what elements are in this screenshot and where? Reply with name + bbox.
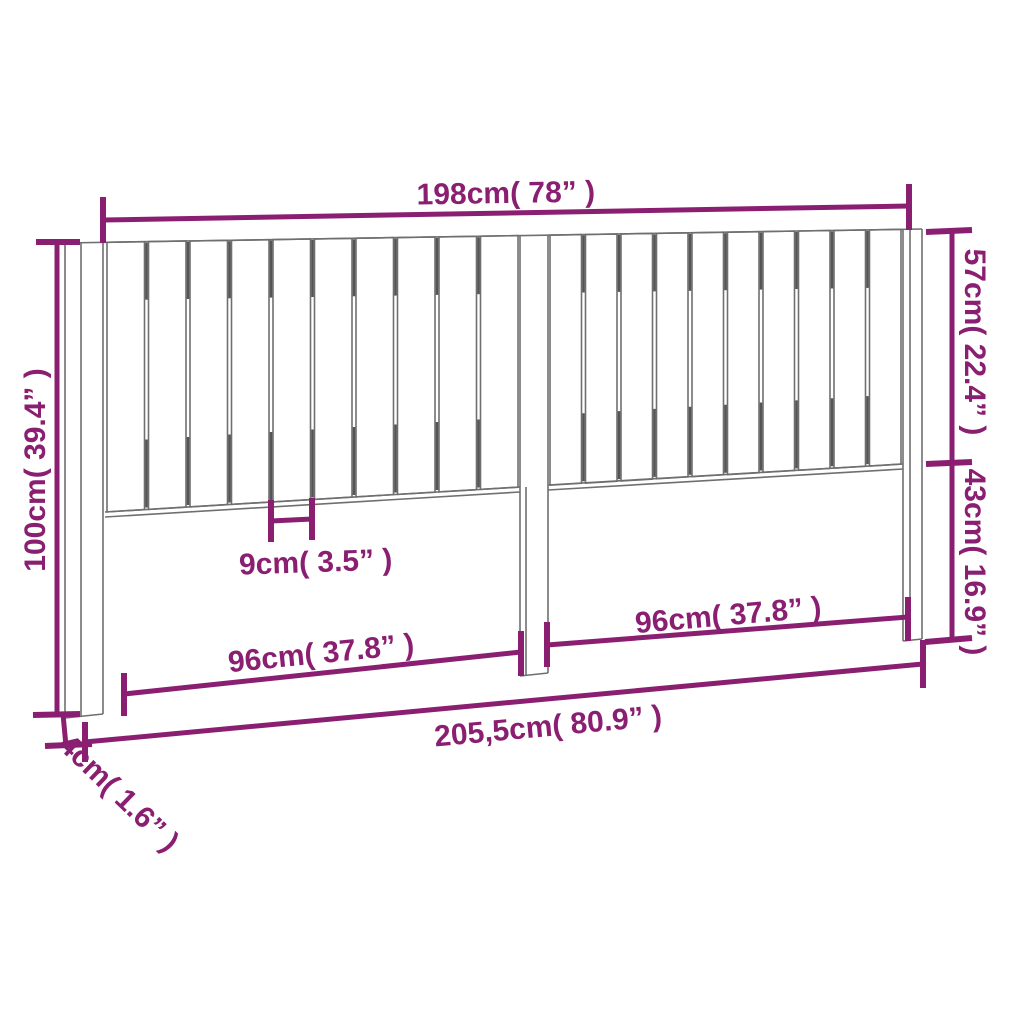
dim-label-total-height-left: 100cm( 39.4” ) xyxy=(19,368,52,571)
middle-leg xyxy=(520,235,548,676)
headboard-slat xyxy=(621,233,653,481)
dim-label-width-top: 198cm( 78” ) xyxy=(416,175,595,211)
headboard-slat xyxy=(190,240,228,507)
right-leg xyxy=(903,229,922,641)
diagram-canvas: 198cm( 78” ) 57cm( 22.4” ) 43cm( 16.9” )… xyxy=(0,0,1024,1024)
headboard-dimension-diagram: 198cm( 78” ) 57cm( 22.4” ) 43cm( 16.9” )… xyxy=(0,0,1024,1024)
headboard-slat xyxy=(273,239,311,502)
headboard-slat xyxy=(356,238,394,497)
headboard-slat xyxy=(657,233,689,479)
dim-label-slat-width: 9cm( 3.5” ) xyxy=(238,543,392,581)
headboard-slat xyxy=(481,236,519,490)
headboard-slat xyxy=(315,238,353,499)
headboard-slat xyxy=(586,234,618,483)
headboard-slat xyxy=(799,231,831,471)
headboard-slats xyxy=(107,229,901,512)
headboard-slat xyxy=(728,232,760,475)
headboard-slat xyxy=(439,236,477,492)
headboard-slat xyxy=(834,230,866,468)
headboard-slat xyxy=(398,237,436,494)
headboard-slat xyxy=(692,232,724,477)
dim-label-slat-height-right: 57cm( 22.4” ) xyxy=(958,249,991,436)
headboard-slat xyxy=(550,235,582,486)
dim-label-thickness: 4cm( 1.6” ) xyxy=(52,728,185,858)
headboard-slat xyxy=(107,242,145,512)
headboard-slat xyxy=(870,229,902,466)
left-leg xyxy=(65,242,103,718)
headboard-slat xyxy=(232,240,270,505)
dim-label-leg-height-right: 43cm( 16.9” ) xyxy=(958,469,991,656)
headboard-slat xyxy=(763,231,795,472)
headboard-slat xyxy=(149,241,187,509)
